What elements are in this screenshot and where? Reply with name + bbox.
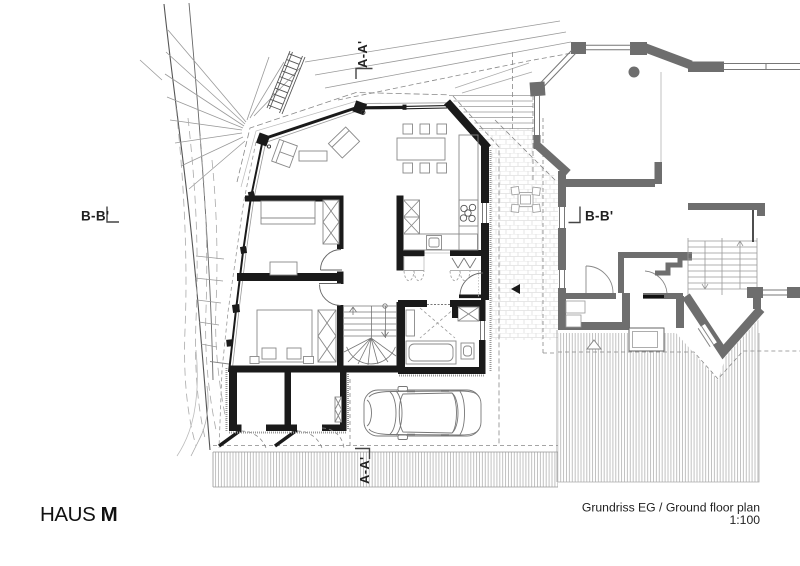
svg-text:A-A': A-A' [355,41,370,68]
svg-text:A-A': A-A' [357,457,372,484]
svg-text:B-B': B-B' [81,209,109,224]
svg-text:1:100: 1:100 [730,513,761,527]
svg-text:B-B': B-B' [585,209,613,224]
svg-text:HAUS M: HAUS M [40,503,117,526]
